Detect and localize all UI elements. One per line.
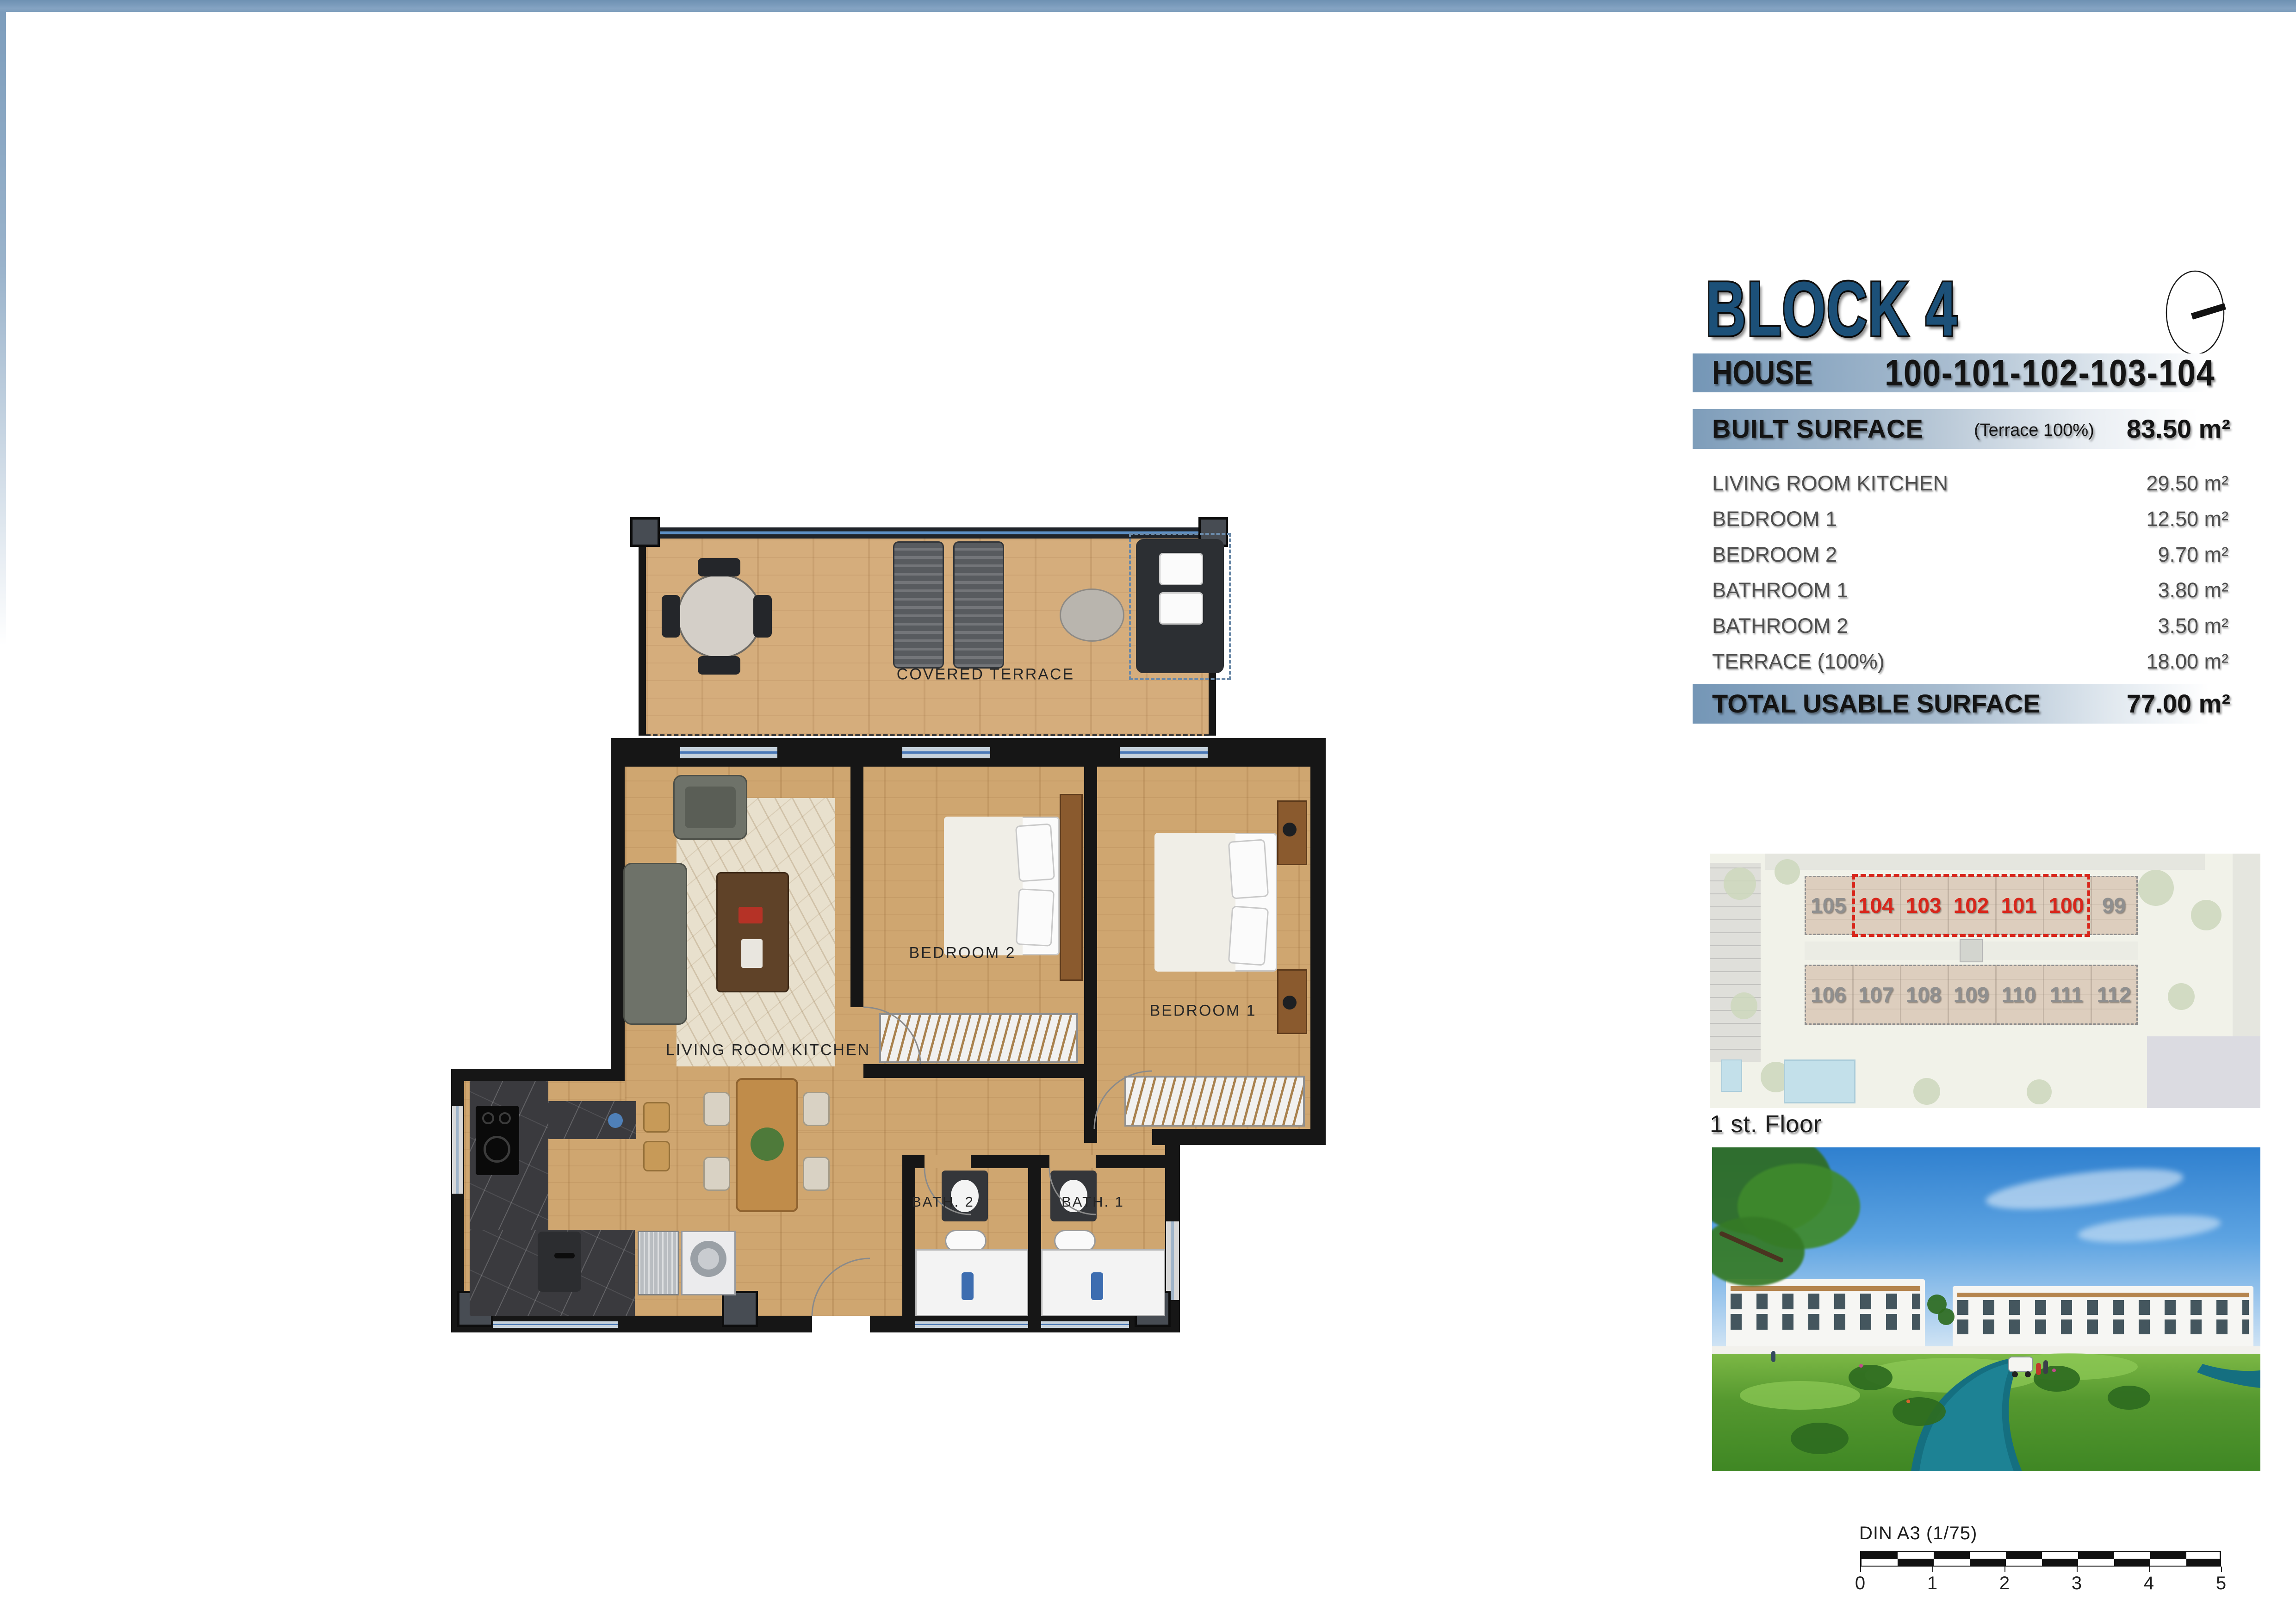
label-bath-1: BATH. 1	[1061, 1194, 1124, 1210]
block-title: BLOCK 4	[1706, 276, 2021, 354]
left-accent-strip	[0, 12, 6, 646]
brochure-page: COVERED TERRACE BEDROOM 2 BEDROOM 1 LIVI…	[0, 0, 2296, 1623]
golf-cart	[2008, 1357, 2033, 1372]
golfer	[2036, 1363, 2041, 1375]
project-render-photo	[1712, 1147, 2260, 1471]
room-row: TERRACE (100%)18.00 m²	[1712, 644, 2229, 679]
house-band: HOUSE 100-101-102-103-104	[1693, 353, 2266, 392]
unit-number: 106	[1811, 982, 1846, 1007]
ruler-tick-line	[2077, 1567, 2078, 1572]
scale-format-label: DIN A3 (1/75)	[1859, 1523, 1977, 1544]
door-arcs	[444, 514, 1347, 1342]
room-row: LIVING ROOM KITCHEN29.50 m²	[1712, 465, 2229, 501]
room-name: BEDROOM 1	[1712, 501, 1837, 537]
ruler-tick-line	[2004, 1567, 2005, 1572]
golfer	[2043, 1360, 2048, 1374]
scale-ruler	[1860, 1551, 2221, 1567]
flower	[2052, 1369, 2056, 1372]
scale-ruler-ticks: 012345	[1860, 1567, 2224, 1599]
ruler-tick-number: 5	[2216, 1573, 2226, 1594]
room-row: BATHROOM 13.80 m²	[1712, 572, 2229, 608]
unit-number: 107	[1858, 982, 1894, 1007]
bush	[1893, 1397, 1946, 1426]
room-row: BATHROOM 23.50 m²	[1712, 608, 2229, 644]
built-surface-value: 83.50 m²	[2127, 409, 2230, 449]
room-area: 12.50 m²	[2146, 501, 2228, 537]
bush	[1791, 1423, 1849, 1454]
label-bedroom-1: BEDROOM 1	[1149, 1002, 1256, 1020]
room-name: BATHROOM 2	[1712, 608, 1848, 644]
built-surface-band: BUILT SURFACE (Terrace 100%) 83.50 m²	[1693, 409, 2266, 449]
unit-number: 110	[2002, 982, 2036, 1007]
ruler-tick-number: 2	[1999, 1573, 2010, 1594]
golfer	[1771, 1351, 1775, 1362]
ruler-tick-number: 0	[1855, 1573, 1865, 1594]
site-plan: 10510410310210110099 1061071081091101111…	[1710, 854, 2260, 1108]
floor-plan: COVERED TERRACE BEDROOM 2 BEDROOM 1 LIVI…	[444, 514, 1347, 1342]
ruler-row	[1862, 1559, 2220, 1566]
unit-number: 111	[2050, 982, 2083, 1007]
unit-number: 112	[2097, 982, 2131, 1007]
top-accent-bar	[0, 0, 2296, 12]
room-name: TERRACE (100%)	[1712, 644, 1885, 679]
built-surface-note: (Terrace 100%)	[1974, 409, 2094, 452]
room-area: 29.50 m²	[2146, 465, 2228, 501]
cart-wheel	[2025, 1371, 2031, 1377]
house-numbers: 100-101-102-103-104	[1885, 353, 2215, 392]
ruler-tick-line	[1932, 1567, 1933, 1572]
ruler-tick-line	[1860, 1567, 1861, 1572]
ruler-tick-line	[2149, 1567, 2150, 1572]
built-surface-label: BUILT SURFACE	[1712, 409, 1924, 449]
total-label: TOTAL USABLE SURFACE	[1712, 684, 2040, 724]
ruler-tick-number: 1	[1927, 1573, 1937, 1594]
room-name: BEDROOM 2	[1712, 537, 1837, 572]
room-name: BATHROOM 1	[1712, 572, 1848, 608]
ruler-tick-line	[2221, 1567, 2222, 1572]
bush	[2108, 1386, 2150, 1410]
flower	[1859, 1364, 1863, 1368]
room-area: 3.80 m²	[2158, 572, 2228, 608]
total-band: TOTAL USABLE SURFACE 77.00 m²	[1693, 684, 2266, 724]
room-row: BEDROOM 29.70 m²	[1712, 537, 2229, 572]
room-area: 18.00 m²	[2146, 644, 2228, 679]
bush	[1849, 1365, 1893, 1390]
unit-number: 108	[1906, 982, 1942, 1007]
flower	[1906, 1400, 1910, 1403]
room-area-list: LIVING ROOM KITCHEN29.50 m²BEDROOM 112.5…	[1712, 465, 2229, 681]
room-row: BEDROOM 112.50 m²	[1712, 501, 2229, 537]
unit-number: 109	[1954, 982, 1989, 1007]
ruler-tick-number: 3	[2072, 1573, 2082, 1594]
label-living-room: LIVING ROOM KITCHEN	[666, 1041, 870, 1059]
site-bottom-unit-numbers: 106107108109110111112	[1710, 854, 2260, 1108]
room-area: 3.50 m²	[2158, 608, 2228, 644]
room-name: LIVING ROOM KITCHEN	[1712, 465, 1948, 501]
site-floor-label: 1 st. Floor	[1710, 1110, 1822, 1138]
label-bedroom-2: BEDROOM 2	[909, 944, 1016, 962]
house-label: HOUSE	[1712, 353, 1813, 392]
label-bath-2: BATH. 2	[912, 1194, 974, 1210]
total-value: 77.00 m²	[2127, 684, 2230, 724]
ruler-tick-number: 4	[2144, 1573, 2154, 1594]
cart-wheel	[2012, 1371, 2018, 1377]
north-arrow-icon	[2159, 267, 2232, 360]
label-covered-terrace: COVERED TERRACE	[897, 666, 1074, 684]
ruler-row	[1862, 1552, 2220, 1559]
room-area: 9.70 m²	[2158, 537, 2228, 572]
